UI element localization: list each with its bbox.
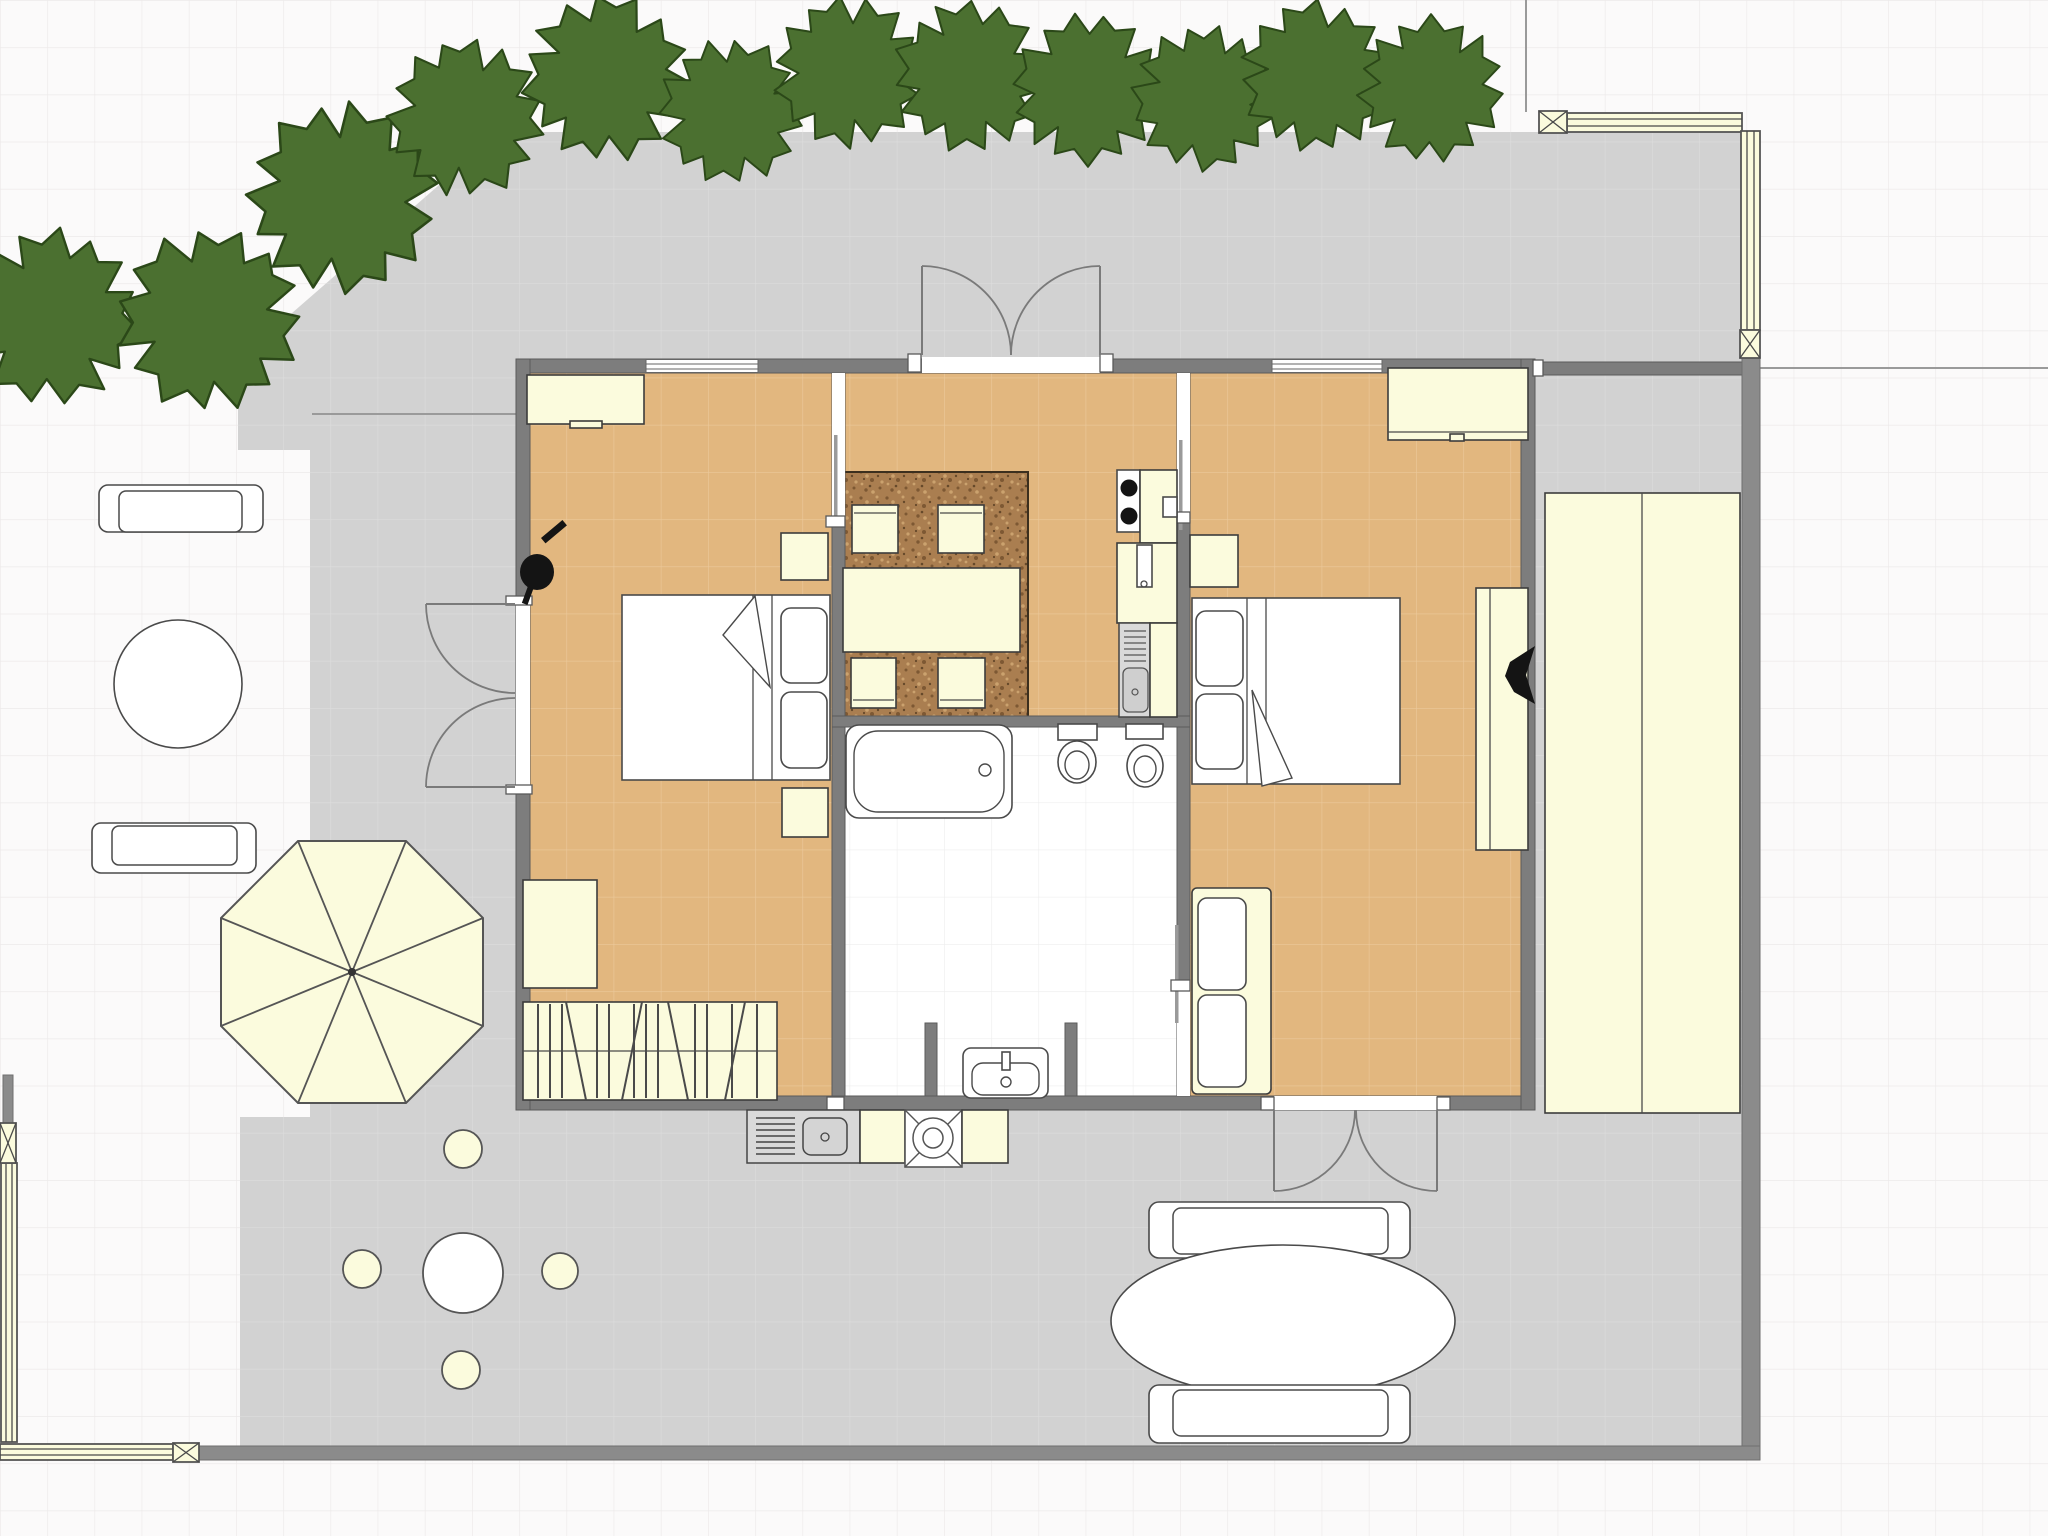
patio-bench[interactable] [1149,1385,1410,1443]
stove[interactable] [1117,470,1140,532]
small-round-table[interactable] [423,1233,503,1313]
window-bedroom-right[interactable] [1272,360,1382,373]
dresser[interactable] [1388,368,1528,441]
boundary-wall-south[interactable] [199,1446,1760,1460]
pergola-post [1740,330,1760,358]
floor-plan-canvas [0,0,2048,1536]
garden-bench[interactable] [99,485,263,532]
dining-chair[interactable] [938,658,985,708]
pergola-post [1539,111,1567,133]
outdoor-grill[interactable] [905,1110,962,1167]
closet-clothes[interactable] [523,1002,777,1100]
stool[interactable] [343,1250,381,1288]
pillow [781,692,827,768]
kitchen-sink[interactable] [1119,623,1150,717]
stool[interactable] [444,1130,482,1168]
pergola-post [0,1123,16,1163]
bathtub[interactable] [846,725,1012,818]
bed[interactable] [622,595,830,780]
jamb-east-extension [1533,360,1543,376]
stool[interactable] [442,1351,480,1389]
oval-table[interactable] [1111,1245,1455,1397]
boundary-wall-east[interactable] [1742,358,1760,1460]
umbrella[interactable] [221,841,483,1103]
patio-dining-set [1111,1202,1455,1443]
wall-sink-alcove-left[interactable] [925,1023,937,1096]
outdoor-counter[interactable] [962,1110,1008,1163]
outdoor-sink[interactable] [747,1110,860,1163]
wall-east-extension[interactable] [1535,362,1742,375]
dining-chair[interactable] [852,505,898,553]
nightstand[interactable] [781,533,828,580]
dining-chair[interactable] [851,658,896,708]
washbasin[interactable] [963,1048,1048,1098]
kitchen-cabinet[interactable] [1117,543,1177,623]
pergola-post [173,1443,199,1462]
wall-sink-alcove-right[interactable] [1065,1023,1077,1096]
stool[interactable] [542,1253,578,1289]
round-garden-table[interactable] [114,620,242,748]
boundary-wall-west-stub[interactable] [3,1075,13,1123]
toilet[interactable] [1126,724,1163,787]
toilet[interactable] [1058,724,1097,783]
dining-table[interactable] [843,568,1020,652]
side-table[interactable] [523,880,597,988]
nightstand[interactable] [782,788,828,837]
bed[interactable] [1192,598,1400,786]
desk[interactable] [1476,588,1528,850]
pillow [1196,694,1243,769]
dining-chair[interactable] [938,505,984,553]
kitchen-counter[interactable] [1150,623,1177,717]
dresser[interactable] [527,375,644,428]
sofa[interactable] [1192,888,1271,1094]
pillow [781,608,827,683]
window-bedroom-left[interactable] [646,360,758,373]
pillow [1196,611,1243,686]
kitchen-strip [1117,470,1177,717]
nightstand[interactable] [1190,535,1238,587]
jamb-south-divider [827,1097,844,1110]
outdoor-wardrobe[interactable] [1545,493,1740,1113]
outdoor-counter[interactable] [860,1110,905,1163]
garden-bench[interactable] [92,823,256,873]
outdoor-kitchen [747,1110,1008,1167]
kitchen-counter[interactable] [1140,470,1177,543]
